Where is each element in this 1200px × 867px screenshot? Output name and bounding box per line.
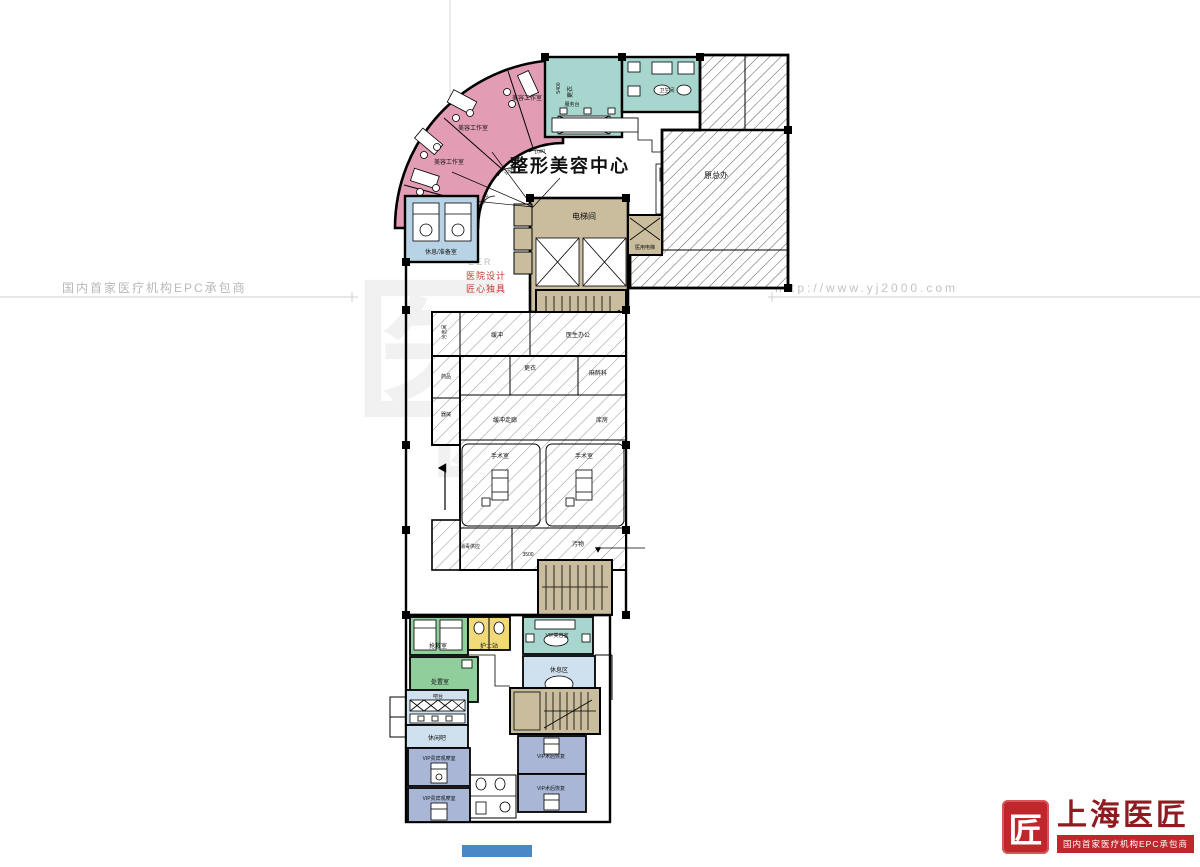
floor-plan-canvas: 国内首家医疗机构EPC承包商 http://www.yj2000.com 医 匠… xyxy=(0,0,1200,867)
bottom-stair xyxy=(510,688,600,734)
anesthesia-label: 麻醉科 xyxy=(589,369,607,377)
disposal-label: 处置室 xyxy=(431,678,449,686)
logo-brand-name: 上海医匠 xyxy=(1057,800,1194,832)
studio-label-1: 美容工作室 xyxy=(512,94,542,102)
buffer-label: 缓冲 xyxy=(491,331,503,339)
studio-label-3: 美容工作室 xyxy=(434,158,464,166)
rest-area-label: 休息区 xyxy=(550,666,568,674)
plan-title: 整形美容中心 xyxy=(509,155,630,176)
rest-prep-room: 休息/准备室 xyxy=(405,196,478,262)
watermark-brand-line1: 医院设计 xyxy=(466,270,506,281)
dirty-corridor-label: 污物 xyxy=(572,540,584,548)
dirty-wash-label: 污洗间 xyxy=(441,324,448,339)
watermark-url: http://www.yj2000.com xyxy=(775,281,958,295)
logo-tagline: 国内首家医疗机构EPC承包商 xyxy=(1057,835,1194,853)
changing-mid-label: 更衣 xyxy=(524,364,536,372)
nurse-station-label: 护士站 xyxy=(480,642,498,650)
original-building-label: 原总办 xyxy=(704,170,728,180)
or1-label: 手术室 xyxy=(491,452,509,460)
rest-prep-label: 休息/准备室 xyxy=(425,248,457,256)
bottom-wing: 抢救室 处置室 护士站 VIP美容室 休息区 xyxy=(390,615,612,857)
logo-seal: 匠 xyxy=(1002,800,1049,854)
or2-label: 手术室 xyxy=(575,452,593,460)
storage-label: 库房 xyxy=(596,416,608,424)
blue-strip xyxy=(462,845,532,857)
watermark-left-text: 国内首家医疗机构EPC承包商 xyxy=(62,280,247,295)
elevator-hall-label: 电梯间 xyxy=(572,211,596,221)
core-cell xyxy=(514,252,532,274)
vip-recovery2-label: VIP术后恢复 xyxy=(537,785,565,792)
instruments-label: 器械 xyxy=(441,411,451,418)
buffer-corridor-label: 缓冲走廊 xyxy=(493,416,517,424)
disinfect-supply-label: 消毒供应 xyxy=(460,543,480,550)
medical-elevator: 医用电梯 xyxy=(628,215,662,255)
bar-counter-label: 吧台 xyxy=(433,693,443,700)
watermark-brand-line2: 匠心独具 xyxy=(466,283,506,294)
leisure-bar-label: 休闲吧 xyxy=(428,734,446,742)
floor-plan-page: 国内首家医疗机构EPC承包商 http://www.yj2000.com 医 匠… xyxy=(0,0,1200,867)
studio-label-2: 美容工作室 xyxy=(458,124,488,132)
surgical-suite: 污洗间 缓冲 医生办公 药品 器械 更衣 麻醉科 缓冲走廊 库房 手术室 手术室… xyxy=(432,312,645,570)
core-cell xyxy=(514,228,532,250)
rescue-label: 抢救室 xyxy=(429,642,447,650)
main-wing: 污洗间 缓冲 医生办公 药品 器械 更衣 麻醉科 缓冲走廊 库房 手术室 手术室… xyxy=(406,262,645,615)
service-desk-label: 服务台 xyxy=(564,101,579,108)
lower-stair xyxy=(538,560,612,615)
changing-room-label: 更衣 xyxy=(566,86,574,98)
vip-observe2-label: VIP贵宾观摩室 xyxy=(422,795,455,802)
logo-seal-char: 匠 xyxy=(1009,803,1043,852)
vip-observe1-label: VIP贵宾观摩室 xyxy=(422,755,455,762)
core-cell xyxy=(514,204,532,226)
bottom-toilet-room xyxy=(470,775,516,818)
toilet-room-top-label: 卫生间 xyxy=(659,87,674,94)
dim-5400: 5400 xyxy=(556,82,562,93)
medical-elevator-label: 医用电梯 xyxy=(635,244,655,251)
doctor-office-label: 医生办公 xyxy=(566,331,590,339)
medicine-label: 药品 xyxy=(441,373,451,380)
dim-3500: 3500 xyxy=(522,552,533,558)
dim-1000-c: 1000 xyxy=(534,148,546,156)
vip-beauty-label: VIP美容室 xyxy=(545,632,568,639)
company-logo: 匠 上海医匠 国内首家医疗机构EPC承包商 xyxy=(1002,800,1194,860)
